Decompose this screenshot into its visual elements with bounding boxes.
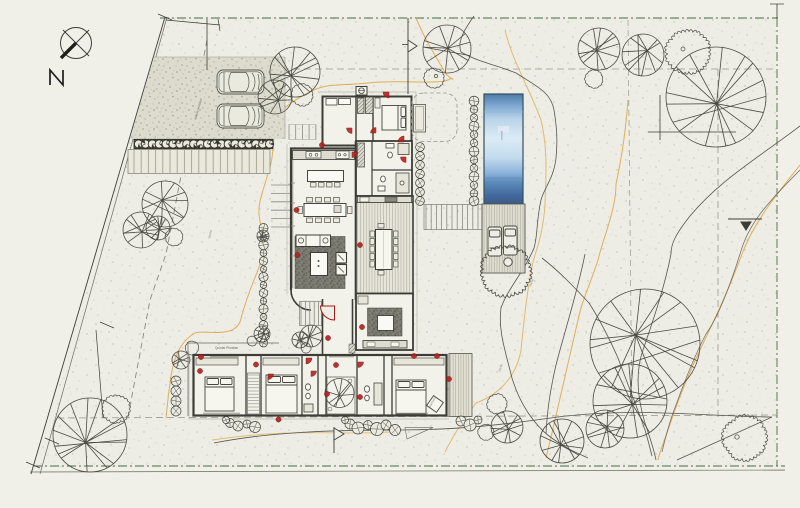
svg-text:Vista Privada: Vista Privada xyxy=(177,351,180,366)
svg-text:Quintal Privativo: Quintal Privativo xyxy=(215,346,238,350)
svg-text:piscina: piscina xyxy=(500,131,504,140)
